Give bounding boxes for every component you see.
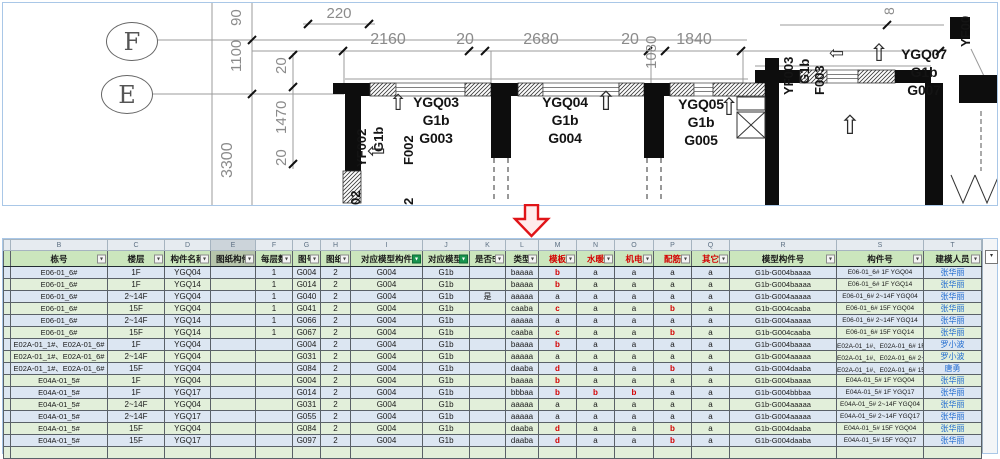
- column-letter-L[interactable]: L: [506, 240, 539, 251]
- cell-H6[interactable]: 2: [321, 327, 351, 339]
- cell-H10[interactable]: 2: [321, 375, 351, 387]
- cell-D15[interactable]: YGQ17: [165, 435, 211, 447]
- cell-I11[interactable]: G004: [351, 387, 423, 399]
- cell-L10[interactable]: baaaa: [506, 375, 539, 387]
- row-sliver[interactable]: [4, 447, 11, 459]
- cell-N12[interactable]: a: [577, 399, 615, 411]
- cell-F9[interactable]: [256, 363, 293, 375]
- cell-Q2[interactable]: a: [692, 279, 730, 291]
- cell-R6[interactable]: G1b-G004caaba: [730, 327, 837, 339]
- cell-T14[interactable]: 张华丽: [924, 423, 982, 435]
- cell-I4[interactable]: G004: [351, 303, 423, 315]
- cell-H12[interactable]: 2: [321, 399, 351, 411]
- cell-N5[interactable]: a: [577, 315, 615, 327]
- cell-H9[interactable]: 2: [321, 363, 351, 375]
- row-sliver[interactable]: [4, 351, 11, 363]
- column-letter-H[interactable]: H: [321, 240, 351, 251]
- cell-C3[interactable]: 2~14F: [108, 291, 165, 303]
- cell-G9[interactable]: G084: [293, 363, 321, 375]
- header-K[interactable]: 是否5a建模▾: [470, 251, 506, 267]
- cell-N9[interactable]: a: [577, 363, 615, 375]
- cell-F1[interactable]: 1: [256, 267, 293, 279]
- cell-D12[interactable]: YGQ04: [165, 399, 211, 411]
- cell-R1[interactable]: G1b-G004baaaa: [730, 267, 837, 279]
- cell-R13[interactable]: G1b-G004aaaaa: [730, 411, 837, 423]
- cell-S7[interactable]: E02A-01_1#、E02A-01_6# 1F YGQ04: [837, 339, 924, 351]
- cell-J2[interactable]: G1b: [423, 279, 470, 291]
- cell-N2[interactable]: a: [577, 279, 615, 291]
- cell-L14[interactable]: daaba: [506, 423, 539, 435]
- header-Q[interactable]: 其它▾: [692, 251, 730, 267]
- column-letter-D[interactable]: D: [165, 240, 211, 251]
- header-T[interactable]: 建模人员▾: [924, 251, 982, 267]
- cell-Q9[interactable]: a: [692, 363, 730, 375]
- cell-B14[interactable]: E04A-01_5#: [11, 423, 108, 435]
- row-sliver[interactable]: [4, 291, 11, 303]
- cell-K14[interactable]: [470, 423, 506, 435]
- cell-J4[interactable]: G1b: [423, 303, 470, 315]
- cell-F6[interactable]: 1: [256, 327, 293, 339]
- row-sliver[interactable]: [4, 279, 11, 291]
- cell-K8[interactable]: [470, 351, 506, 363]
- cell-I8[interactable]: G004: [351, 351, 423, 363]
- filter-dropdown-icon[interactable]: ▾: [310, 254, 319, 263]
- filter-dropdown-icon[interactable]: ▾: [200, 254, 209, 263]
- cell-Q13[interactable]: a: [692, 411, 730, 423]
- filter-dropdown-icon[interactable]: ▾: [495, 254, 504, 263]
- header-M[interactable]: 模板▾: [539, 251, 577, 267]
- row-sliver[interactable]: [4, 267, 11, 279]
- cell-B13[interactable]: E04A-01_5#: [11, 411, 108, 423]
- cell-Q7[interactable]: a: [692, 339, 730, 351]
- cell-C1[interactable]: 1F: [108, 267, 165, 279]
- cell-L13[interactable]: aaaaa: [506, 411, 539, 423]
- cell-N7[interactable]: a: [577, 339, 615, 351]
- cell-N6[interactable]: a: [577, 327, 615, 339]
- cell-H16[interactable]: [321, 447, 351, 459]
- cell-R2[interactable]: G1b-G004baaaa: [730, 279, 837, 291]
- cell-E9[interactable]: [211, 363, 256, 375]
- header-F[interactable]: 每层数量▾: [256, 251, 293, 267]
- row-sliver[interactable]: [4, 363, 11, 375]
- cell-R9[interactable]: G1b-G004daaba: [730, 363, 837, 375]
- cell-P12[interactable]: a: [654, 399, 692, 411]
- cell-C13[interactable]: 2~14F: [108, 411, 165, 423]
- cell-T6[interactable]: 张华丽: [924, 327, 982, 339]
- cell-F14[interactable]: [256, 423, 293, 435]
- cell-L8[interactable]: aaaaa: [506, 351, 539, 363]
- cell-L4[interactable]: caaba: [506, 303, 539, 315]
- cell-E4[interactable]: [211, 303, 256, 315]
- cell-D8[interactable]: YGQ04: [165, 351, 211, 363]
- cell-F10[interactable]: [256, 375, 293, 387]
- cell-L9[interactable]: daaba: [506, 363, 539, 375]
- cell-O2[interactable]: a: [615, 279, 654, 291]
- cell-P3[interactable]: a: [654, 291, 692, 303]
- row-sliver[interactable]: [4, 315, 11, 327]
- cell-L15[interactable]: daaba: [506, 435, 539, 447]
- header-P[interactable]: 配筋▾: [654, 251, 692, 267]
- cell-S6[interactable]: E06-01_6# 15F YGQ14: [837, 327, 924, 339]
- cell-N16[interactable]: [577, 447, 615, 459]
- cell-R12[interactable]: G1b-G004aaaaa: [730, 399, 837, 411]
- header-L[interactable]: 类型▾: [506, 251, 539, 267]
- cell-L16[interactable]: [506, 447, 539, 459]
- cell-N14[interactable]: a: [577, 423, 615, 435]
- cell-R10[interactable]: G1b-G004baaaa: [730, 375, 837, 387]
- cell-S16[interactable]: [837, 447, 924, 459]
- cell-T11[interactable]: 张华丽: [924, 387, 982, 399]
- cell-T9[interactable]: 唐勇: [924, 363, 982, 375]
- cell-G7[interactable]: G004: [293, 339, 321, 351]
- cell-I14[interactable]: G004: [351, 423, 423, 435]
- column-letter-T[interactable]: T: [924, 240, 982, 251]
- cell-R11[interactable]: G1b-G004bbbaa: [730, 387, 837, 399]
- cell-I2[interactable]: G004: [351, 279, 423, 291]
- cell-J1[interactable]: G1b: [423, 267, 470, 279]
- cell-P14[interactable]: b: [654, 423, 692, 435]
- cell-P5[interactable]: a: [654, 315, 692, 327]
- cell-M16[interactable]: [539, 447, 577, 459]
- cell-P11[interactable]: a: [654, 387, 692, 399]
- cell-Q11[interactable]: a: [692, 387, 730, 399]
- header-E[interactable]: 图纸构件加模▾: [211, 251, 256, 267]
- header-sliver[interactable]: [4, 251, 11, 267]
- cell-T12[interactable]: 张华丽: [924, 399, 982, 411]
- cell-E13[interactable]: [211, 411, 256, 423]
- cell-K11[interactable]: [470, 387, 506, 399]
- cell-D16[interactable]: [165, 447, 211, 459]
- cell-R8[interactable]: G1b-G004aaaaa: [730, 351, 837, 363]
- cell-P13[interactable]: a: [654, 411, 692, 423]
- filter-dropdown-icon[interactable]: ▾: [971, 254, 980, 263]
- cell-P2[interactable]: a: [654, 279, 692, 291]
- cell-L1[interactable]: baaaa: [506, 267, 539, 279]
- scrollbar-up-icon[interactable]: ▾: [985, 250, 998, 264]
- cell-T3[interactable]: 张华丽: [924, 291, 982, 303]
- cell-J6[interactable]: G1b: [423, 327, 470, 339]
- cell-L11[interactable]: bbbaa: [506, 387, 539, 399]
- cell-F3[interactable]: 1: [256, 291, 293, 303]
- cell-O7[interactable]: a: [615, 339, 654, 351]
- cell-M8[interactable]: a: [539, 351, 577, 363]
- cell-O9[interactable]: a: [615, 363, 654, 375]
- cell-H5[interactable]: 2: [321, 315, 351, 327]
- cell-D6[interactable]: YGQ14: [165, 327, 211, 339]
- cell-I9[interactable]: G004: [351, 363, 423, 375]
- cell-F2[interactable]: 1: [256, 279, 293, 291]
- row-sliver[interactable]: [4, 339, 11, 351]
- cell-C14[interactable]: 15F: [108, 423, 165, 435]
- cell-C8[interactable]: 2~14F: [108, 351, 165, 363]
- cell-Q16[interactable]: [692, 447, 730, 459]
- row-sliver[interactable]: [4, 327, 11, 339]
- cell-E6[interactable]: [211, 327, 256, 339]
- row-sliver[interactable]: [4, 435, 11, 447]
- cell-P7[interactable]: a: [654, 339, 692, 351]
- cell-D11[interactable]: YGQ17: [165, 387, 211, 399]
- cell-L2[interactable]: baaaa: [506, 279, 539, 291]
- column-letter-N[interactable]: N: [577, 240, 615, 251]
- cell-B1[interactable]: E06-01_6#: [11, 267, 108, 279]
- cell-K2[interactable]: [470, 279, 506, 291]
- cell-F16[interactable]: [256, 447, 293, 459]
- cell-P8[interactable]: a: [654, 351, 692, 363]
- cell-P15[interactable]: b: [654, 435, 692, 447]
- filter-dropdown-icon[interactable]: ▾: [97, 254, 106, 263]
- cell-O1[interactable]: a: [615, 267, 654, 279]
- cell-M6[interactable]: c: [539, 327, 577, 339]
- cell-I13[interactable]: G004: [351, 411, 423, 423]
- cell-G16[interactable]: [293, 447, 321, 459]
- header-H[interactable]: 图纸数▾: [321, 251, 351, 267]
- cell-C7[interactable]: 1F: [108, 339, 165, 351]
- cell-S15[interactable]: E04A-01_5# 15F YGQ17: [837, 435, 924, 447]
- filter-dropdown-icon[interactable]: ▾: [282, 254, 291, 263]
- filter-dropdown-icon[interactable]: ▾: [719, 254, 728, 263]
- column-letter-M[interactable]: M: [539, 240, 577, 251]
- cell-F11[interactable]: [256, 387, 293, 399]
- cell-E5[interactable]: [211, 315, 256, 327]
- cell-M11[interactable]: b: [539, 387, 577, 399]
- header-O[interactable]: 机电▾: [615, 251, 654, 267]
- cell-I12[interactable]: G004: [351, 399, 423, 411]
- cell-F5[interactable]: 1: [256, 315, 293, 327]
- cell-G11[interactable]: G014: [293, 387, 321, 399]
- cell-O15[interactable]: a: [615, 435, 654, 447]
- cell-I15[interactable]: G004: [351, 435, 423, 447]
- cell-B10[interactable]: E04A-01_5#: [11, 375, 108, 387]
- cell-G12[interactable]: G031: [293, 399, 321, 411]
- cell-P16[interactable]: [654, 447, 692, 459]
- cell-Q12[interactable]: a: [692, 399, 730, 411]
- cell-G2[interactable]: G014: [293, 279, 321, 291]
- column-letter-F[interactable]: F: [256, 240, 293, 251]
- cell-O6[interactable]: a: [615, 327, 654, 339]
- cell-B2[interactable]: E06-01_6#: [11, 279, 108, 291]
- cell-D7[interactable]: YGQ04: [165, 339, 211, 351]
- cell-Q3[interactable]: a: [692, 291, 730, 303]
- cell-S14[interactable]: E04A-01_5# 15F YGQ04: [837, 423, 924, 435]
- column-letter-P[interactable]: P: [654, 240, 692, 251]
- cell-G15[interactable]: G097: [293, 435, 321, 447]
- cell-F12[interactable]: [256, 399, 293, 411]
- cell-J16[interactable]: [423, 447, 470, 459]
- cell-G6[interactable]: G067: [293, 327, 321, 339]
- cell-B5[interactable]: E06-01_6#: [11, 315, 108, 327]
- cell-H7[interactable]: 2: [321, 339, 351, 351]
- cell-D4[interactable]: YGQ04: [165, 303, 211, 315]
- cell-E2[interactable]: [211, 279, 256, 291]
- cell-Q5[interactable]: a: [692, 315, 730, 327]
- filter-dropdown-icon[interactable]: ▾: [826, 254, 835, 263]
- column-letter-C[interactable]: C: [108, 240, 165, 251]
- cell-R16[interactable]: [730, 447, 837, 459]
- cell-T4[interactable]: 张华丽: [924, 303, 982, 315]
- cell-K5[interactable]: [470, 315, 506, 327]
- cell-H1[interactable]: 2: [321, 267, 351, 279]
- cell-P10[interactable]: a: [654, 375, 692, 387]
- cell-K3[interactable]: 是: [470, 291, 506, 303]
- cell-H8[interactable]: 2: [321, 351, 351, 363]
- cell-P4[interactable]: b: [654, 303, 692, 315]
- cell-C10[interactable]: 1F: [108, 375, 165, 387]
- cell-Q4[interactable]: a: [692, 303, 730, 315]
- row-sliver[interactable]: [4, 303, 11, 315]
- row-sliver[interactable]: [4, 411, 11, 423]
- cell-N10[interactable]: a: [577, 375, 615, 387]
- cell-J8[interactable]: G1b: [423, 351, 470, 363]
- cell-I6[interactable]: G004: [351, 327, 423, 339]
- cell-M1[interactable]: b: [539, 267, 577, 279]
- cell-B3[interactable]: E06-01_6#: [11, 291, 108, 303]
- row-sliver[interactable]: [4, 387, 11, 399]
- cell-O11[interactable]: b: [615, 387, 654, 399]
- cell-K4[interactable]: [470, 303, 506, 315]
- cell-J14[interactable]: G1b: [423, 423, 470, 435]
- cell-I1[interactable]: G004: [351, 267, 423, 279]
- cell-C5[interactable]: 2~14F: [108, 315, 165, 327]
- cell-G13[interactable]: G055: [293, 411, 321, 423]
- cell-N15[interactable]: a: [577, 435, 615, 447]
- cell-B6[interactable]: E06-01_6#: [11, 327, 108, 339]
- cell-J10[interactable]: G1b: [423, 375, 470, 387]
- cell-K16[interactable]: [470, 447, 506, 459]
- cell-S2[interactable]: E06-01_6# 1F YGQ14: [837, 279, 924, 291]
- cell-T1[interactable]: 张华丽: [924, 267, 982, 279]
- cell-Q8[interactable]: a: [692, 351, 730, 363]
- cell-C16[interactable]: [108, 447, 165, 459]
- cell-Q1[interactable]: a: [692, 267, 730, 279]
- cell-L5[interactable]: aaaaa: [506, 315, 539, 327]
- row-sliver[interactable]: [4, 375, 11, 387]
- cell-D2[interactable]: YGQ14: [165, 279, 211, 291]
- header-D[interactable]: 构件名称▾: [165, 251, 211, 267]
- header-I[interactable]: 对应模型构件▾: [351, 251, 423, 267]
- cell-E15[interactable]: [211, 435, 256, 447]
- column-letter-K[interactable]: K: [470, 240, 506, 251]
- cell-K12[interactable]: [470, 399, 506, 411]
- cell-C2[interactable]: 1F: [108, 279, 165, 291]
- cell-L7[interactable]: baaaa: [506, 339, 539, 351]
- cell-F13[interactable]: [256, 411, 293, 423]
- cell-S12[interactable]: E04A-01_5# 2~14F YGQ04: [837, 399, 924, 411]
- cell-D5[interactable]: YGQ14: [165, 315, 211, 327]
- cell-K9[interactable]: [470, 363, 506, 375]
- cell-M5[interactable]: a: [539, 315, 577, 327]
- filter-dropdown-icon[interactable]: ▾: [604, 254, 613, 263]
- cell-R14[interactable]: G1b-G004daaba: [730, 423, 837, 435]
- cell-J15[interactable]: G1b: [423, 435, 470, 447]
- cell-B12[interactable]: E04A-01_5#: [11, 399, 108, 411]
- cell-M14[interactable]: d: [539, 423, 577, 435]
- cell-K6[interactable]: [470, 327, 506, 339]
- cell-H2[interactable]: 2: [321, 279, 351, 291]
- cell-L6[interactable]: caaba: [506, 327, 539, 339]
- cell-G1[interactable]: G004: [293, 267, 321, 279]
- cell-C15[interactable]: 15F: [108, 435, 165, 447]
- scrollbar[interactable]: ▾: [982, 239, 997, 453]
- cell-R15[interactable]: G1b-G004daaba: [730, 435, 837, 447]
- cell-P6[interactable]: b: [654, 327, 692, 339]
- filter-active-icon[interactable]: ▾: [459, 254, 468, 263]
- cell-G10[interactable]: G004: [293, 375, 321, 387]
- cell-G4[interactable]: G041: [293, 303, 321, 315]
- filter-dropdown-icon[interactable]: ▾: [154, 254, 163, 263]
- cell-M15[interactable]: d: [539, 435, 577, 447]
- cell-E12[interactable]: [211, 399, 256, 411]
- cell-T2[interactable]: 张华丽: [924, 279, 982, 291]
- cell-N13[interactable]: a: [577, 411, 615, 423]
- cell-I7[interactable]: G004: [351, 339, 423, 351]
- cell-Q14[interactable]: a: [692, 423, 730, 435]
- cell-O3[interactable]: a: [615, 291, 654, 303]
- cell-I10[interactable]: G004: [351, 375, 423, 387]
- cell-B16[interactable]: [11, 447, 108, 459]
- cell-O8[interactable]: a: [615, 351, 654, 363]
- cell-O12[interactable]: a: [615, 399, 654, 411]
- cell-K10[interactable]: [470, 375, 506, 387]
- column-letter-G[interactable]: G: [293, 240, 321, 251]
- column-letter-O[interactable]: O: [615, 240, 654, 251]
- header-J[interactable]: 对应模型区▾: [423, 251, 470, 267]
- cell-B15[interactable]: E04A-01_5#: [11, 435, 108, 447]
- cell-O4[interactable]: a: [615, 303, 654, 315]
- cell-J9[interactable]: G1b: [423, 363, 470, 375]
- cell-E11[interactable]: [211, 387, 256, 399]
- cell-Q6[interactable]: a: [692, 327, 730, 339]
- cell-M10[interactable]: b: [539, 375, 577, 387]
- cell-E10[interactable]: [211, 375, 256, 387]
- cell-H15[interactable]: 2: [321, 435, 351, 447]
- cell-C6[interactable]: 15F: [108, 327, 165, 339]
- filter-dropdown-icon[interactable]: ▾: [245, 254, 254, 263]
- cell-K15[interactable]: [470, 435, 506, 447]
- cell-S8[interactable]: E02A-01_1#、E02A-01_6# 2~14F YGQ04: [837, 351, 924, 363]
- cell-O13[interactable]: a: [615, 411, 654, 423]
- cell-M7[interactable]: b: [539, 339, 577, 351]
- cell-S11[interactable]: E04A-01_5# 1F YGQ17: [837, 387, 924, 399]
- cell-T16[interactable]: [924, 447, 982, 459]
- filter-dropdown-icon[interactable]: ▾: [681, 254, 690, 263]
- cell-C4[interactable]: 15F: [108, 303, 165, 315]
- cell-J3[interactable]: G1b: [423, 291, 470, 303]
- cell-N4[interactable]: a: [577, 303, 615, 315]
- cell-M3[interactable]: a: [539, 291, 577, 303]
- cell-B8[interactable]: E02A-01_1#、E02A-01_6#: [11, 351, 108, 363]
- cell-R3[interactable]: G1b-G004aaaaa: [730, 291, 837, 303]
- cell-B9[interactable]: E02A-01_1#、E02A-01_6#: [11, 363, 108, 375]
- header-C[interactable]: 楼层▾: [108, 251, 165, 267]
- cell-J13[interactable]: G1b: [423, 411, 470, 423]
- cell-H4[interactable]: 2: [321, 303, 351, 315]
- cell-M4[interactable]: c: [539, 303, 577, 315]
- cell-J5[interactable]: G1b: [423, 315, 470, 327]
- column-letter-S[interactable]: S: [837, 240, 924, 251]
- cell-O10[interactable]: a: [615, 375, 654, 387]
- cell-P9[interactable]: b: [654, 363, 692, 375]
- cell-G14[interactable]: G084: [293, 423, 321, 435]
- cell-N8[interactable]: a: [577, 351, 615, 363]
- cell-O5[interactable]: a: [615, 315, 654, 327]
- cell-L3[interactable]: aaaaa: [506, 291, 539, 303]
- cell-R4[interactable]: G1b-G004caaba: [730, 303, 837, 315]
- filter-dropdown-icon[interactable]: ▾: [913, 254, 922, 263]
- cell-I3[interactable]: G004: [351, 291, 423, 303]
- filter-dropdown-icon[interactable]: ▾: [528, 254, 537, 263]
- row-sliver[interactable]: [4, 423, 11, 435]
- cell-E3[interactable]: [211, 291, 256, 303]
